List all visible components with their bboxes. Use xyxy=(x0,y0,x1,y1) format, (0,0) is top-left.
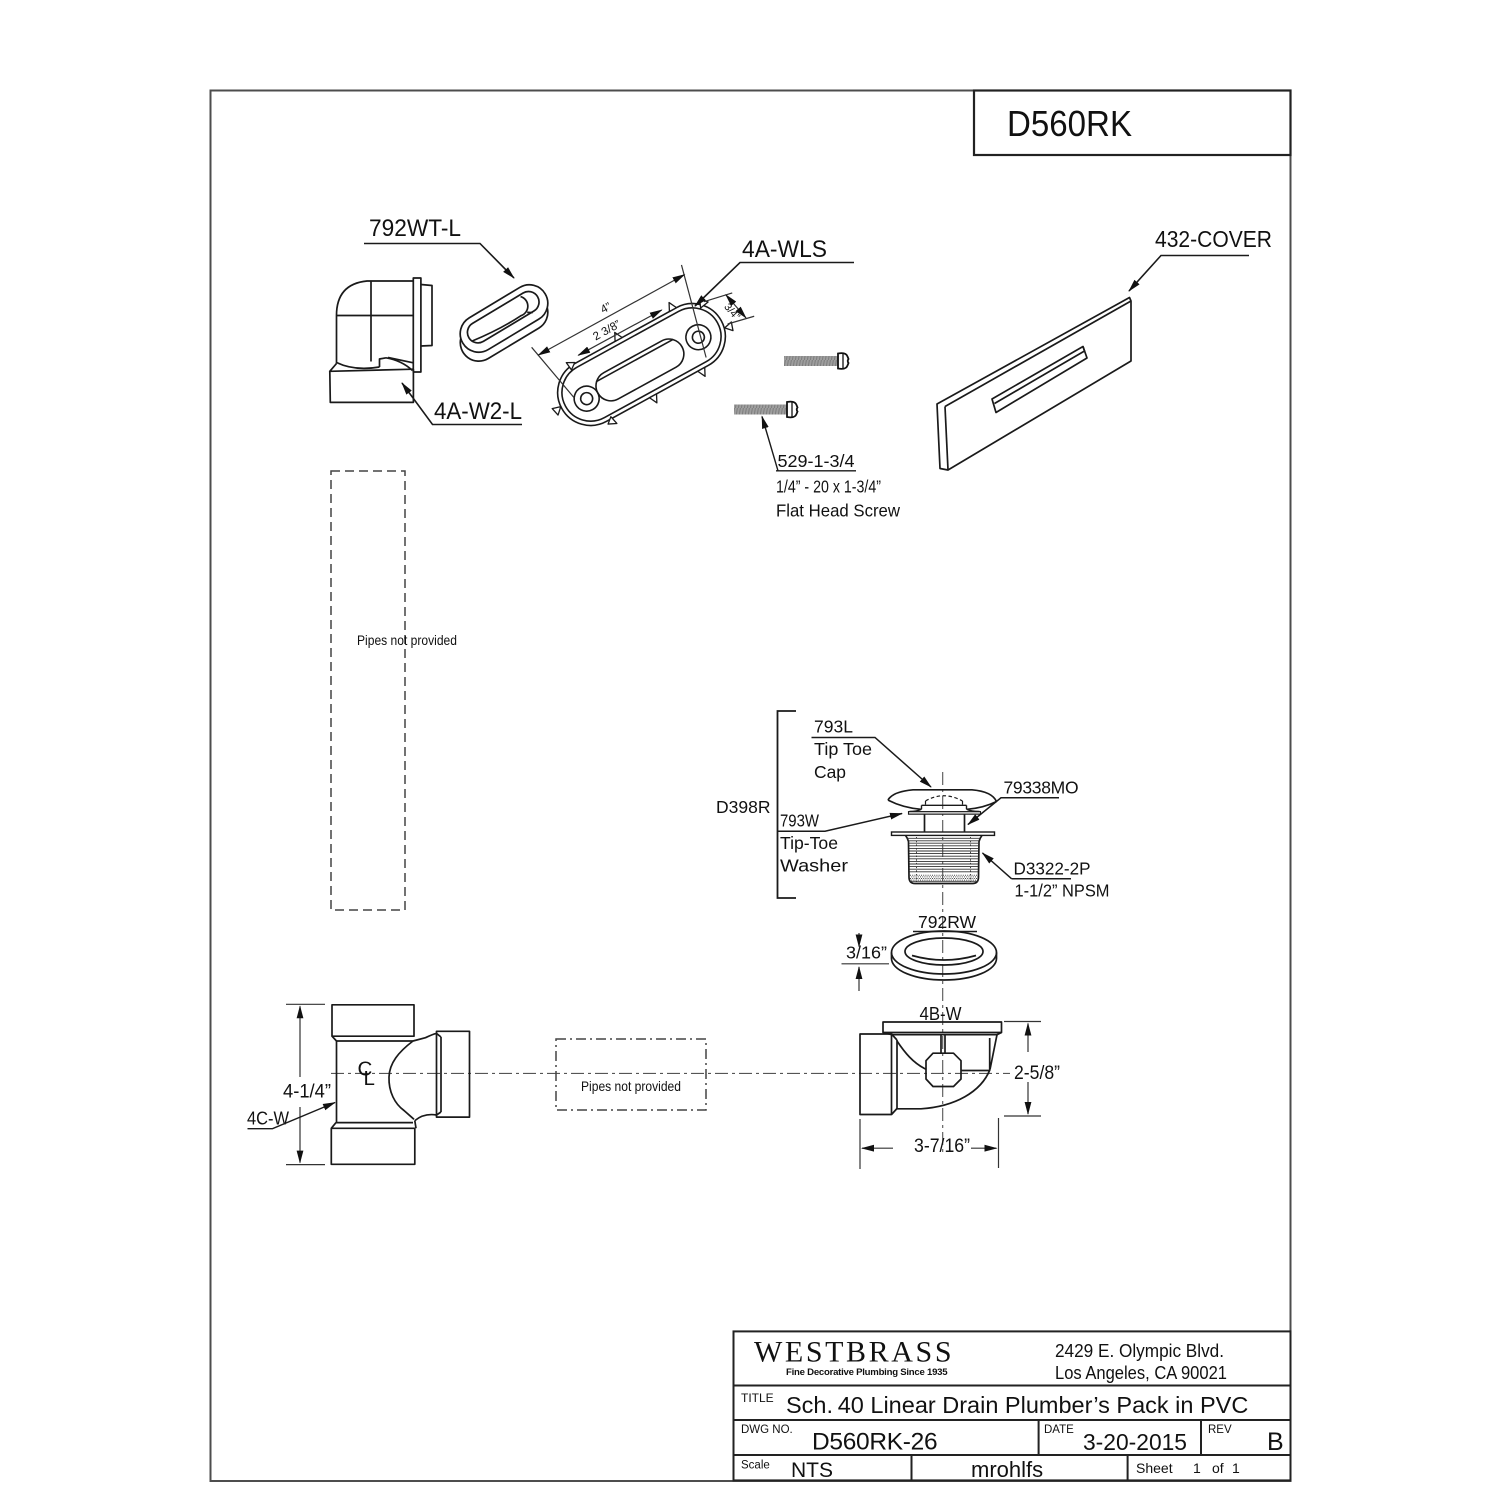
svg-text:Fine Decorative Plumbing Since: Fine Decorative Plumbing Since 1935 xyxy=(786,1367,948,1378)
svg-text:4-1/4”: 4-1/4” xyxy=(283,1082,331,1103)
svg-text:Washer: Washer xyxy=(780,856,848,876)
svg-text:792WT-L: 792WT-L xyxy=(369,215,461,242)
svg-text:L: L xyxy=(364,1067,375,1090)
svg-text:REV: REV xyxy=(1208,1424,1232,1436)
svg-text:3-20-2015: 3-20-2015 xyxy=(1083,1429,1187,1455)
svg-text:TITLE: TITLE xyxy=(741,1391,774,1405)
svg-text:of: of xyxy=(1212,1460,1224,1476)
svg-text:D560RK-26: D560RK-26 xyxy=(812,1429,937,1456)
svg-text:B: B xyxy=(1267,1428,1284,1456)
svg-text:D398R: D398R xyxy=(716,797,770,817)
svg-text:4C-W: 4C-W xyxy=(247,1108,289,1129)
svg-text:WESTBRASS: WESTBRASS xyxy=(754,1336,954,1369)
svg-text:Cap: Cap xyxy=(814,762,846,782)
svg-text:3/16”: 3/16” xyxy=(846,943,887,963)
svg-text:3-7/16”: 3-7/16” xyxy=(914,1136,970,1157)
svg-text:mrohlfs: mrohlfs xyxy=(971,1457,1043,1482)
svg-text:4A-W2-L: 4A-W2-L xyxy=(434,398,522,425)
svg-text:Flat Head Screw: Flat Head Screw xyxy=(776,501,900,521)
svg-text:432-COVER: 432-COVER xyxy=(1155,226,1272,252)
svg-text:4A-WLS: 4A-WLS xyxy=(742,236,827,263)
svg-text:NTS: NTS xyxy=(791,1459,833,1482)
svg-text:1-1/2” NPSM: 1-1/2” NPSM xyxy=(1015,881,1110,901)
svg-text:Scale: Scale xyxy=(741,1460,770,1472)
svg-text:2429 E. Olympic Blvd.: 2429 E. Olympic Blvd. xyxy=(1055,1340,1224,1361)
svg-text:DATE: DATE xyxy=(1044,1424,1074,1436)
svg-text:DWG NO.: DWG NO. xyxy=(741,1424,793,1436)
svg-text:2-5/8”: 2-5/8” xyxy=(1014,1063,1060,1084)
svg-text:792RW: 792RW xyxy=(918,912,977,932)
svg-text:Sheet: Sheet xyxy=(1136,1460,1173,1476)
svg-text:D560RK: D560RK xyxy=(1007,103,1132,144)
svg-text:Sch. 40 Linear Drain Plumber’s: Sch. 40 Linear Drain Plumber’s Pack in P… xyxy=(786,1392,1248,1418)
svg-text:1/4” - 20 x 1-3/4”: 1/4” - 20 x 1-3/4” xyxy=(776,477,881,497)
svg-text:Los Angeles, CA 90021: Los Angeles, CA 90021 xyxy=(1055,1362,1227,1383)
svg-text:529-1-3/4: 529-1-3/4 xyxy=(778,451,855,471)
svg-text:1: 1 xyxy=(1193,1460,1201,1476)
svg-text:4”: 4” xyxy=(599,301,614,317)
svg-text:793W: 793W xyxy=(780,811,819,831)
svg-text:3/4”: 3/4” xyxy=(721,301,742,323)
svg-text:793L: 793L xyxy=(814,717,853,737)
svg-text:4B-W: 4B-W xyxy=(920,1004,962,1024)
svg-text:79338MO: 79338MO xyxy=(1004,778,1079,798)
svg-text:Tip-Toe: Tip-Toe xyxy=(780,833,838,853)
svg-text:D3322-2P: D3322-2P xyxy=(1014,859,1091,879)
svg-text:1: 1 xyxy=(1232,1460,1240,1476)
svg-text:Pipes not provided: Pipes not provided xyxy=(357,633,457,648)
svg-text:Pipes not provided: Pipes not provided xyxy=(581,1079,681,1094)
svg-text:Tip Toe: Tip Toe xyxy=(814,739,872,759)
